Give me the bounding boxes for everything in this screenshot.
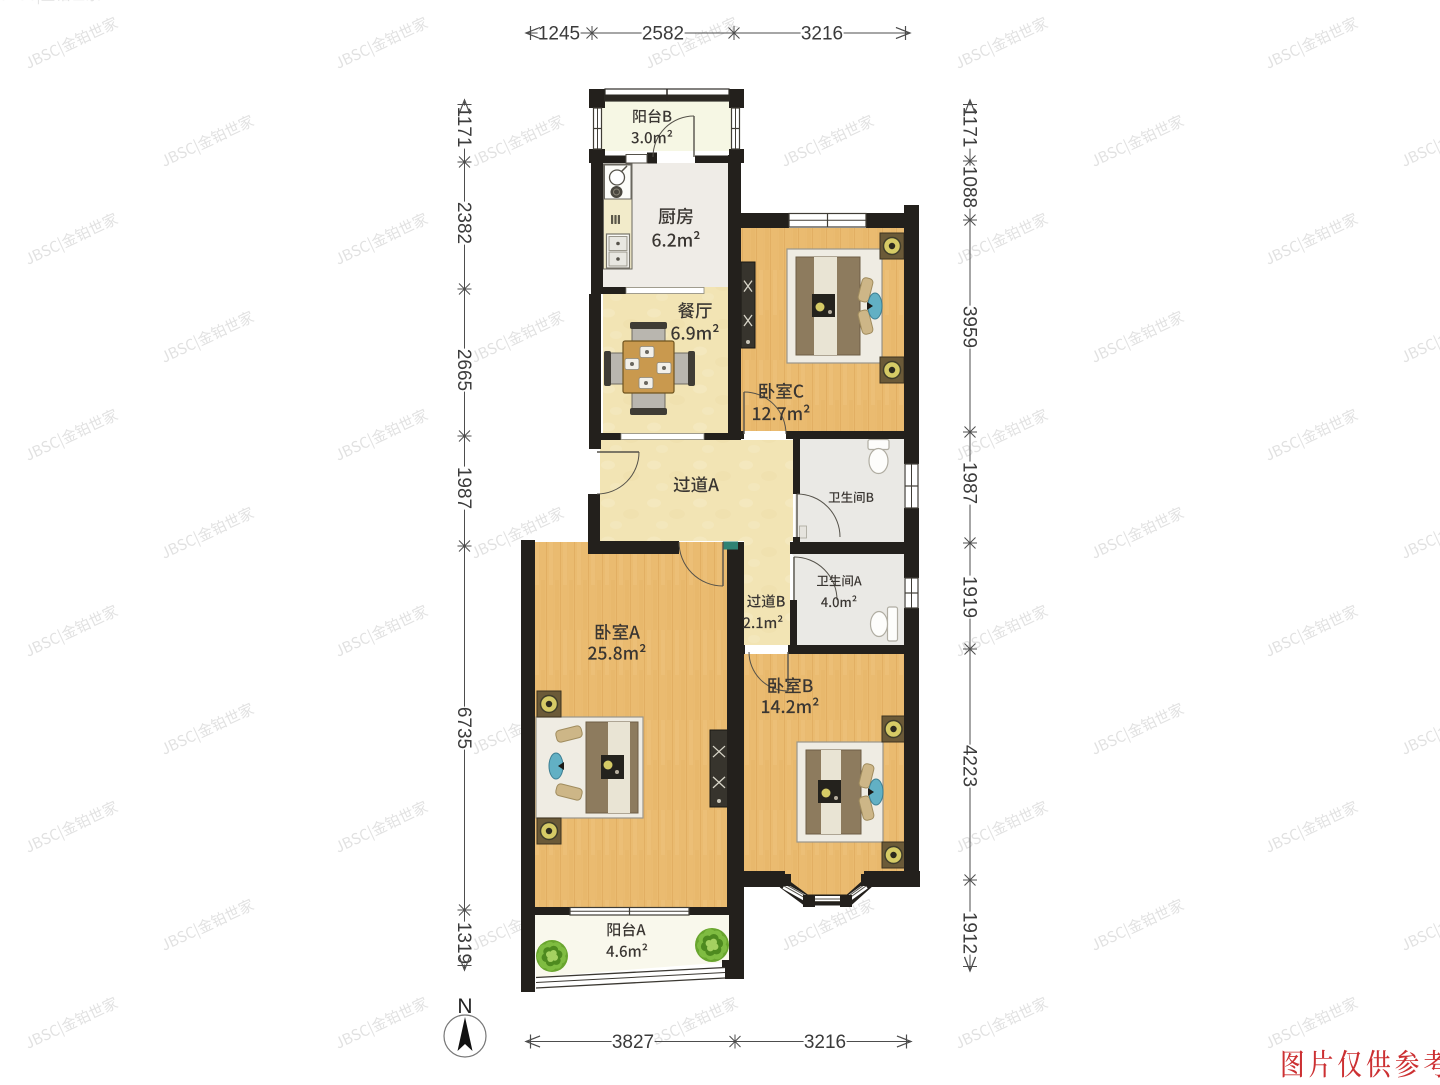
svg-text:2665: 2665 xyxy=(453,349,474,391)
svg-text:1919: 1919 xyxy=(959,576,980,618)
svg-text:6735: 6735 xyxy=(453,707,474,749)
svg-text:1912: 1912 xyxy=(959,912,980,954)
svg-text:3216: 3216 xyxy=(804,1032,846,1053)
svg-text:3959: 3959 xyxy=(959,306,980,348)
svg-text:1319: 1319 xyxy=(453,922,474,964)
svg-text:3216: 3216 xyxy=(801,24,843,45)
svg-text:N: N xyxy=(457,995,472,1018)
svg-text:4223: 4223 xyxy=(959,745,980,787)
svg-text:1171: 1171 xyxy=(959,107,980,148)
svg-text:1088: 1088 xyxy=(959,166,980,208)
svg-text:3827: 3827 xyxy=(612,1032,654,1053)
svg-text:2582: 2582 xyxy=(642,24,684,45)
svg-text:1171: 1171 xyxy=(453,107,474,148)
svg-text:1987: 1987 xyxy=(959,462,980,504)
svg-text:1987: 1987 xyxy=(453,467,474,509)
svg-text:2382: 2382 xyxy=(453,202,474,244)
svg-text:1245: 1245 xyxy=(538,24,580,45)
